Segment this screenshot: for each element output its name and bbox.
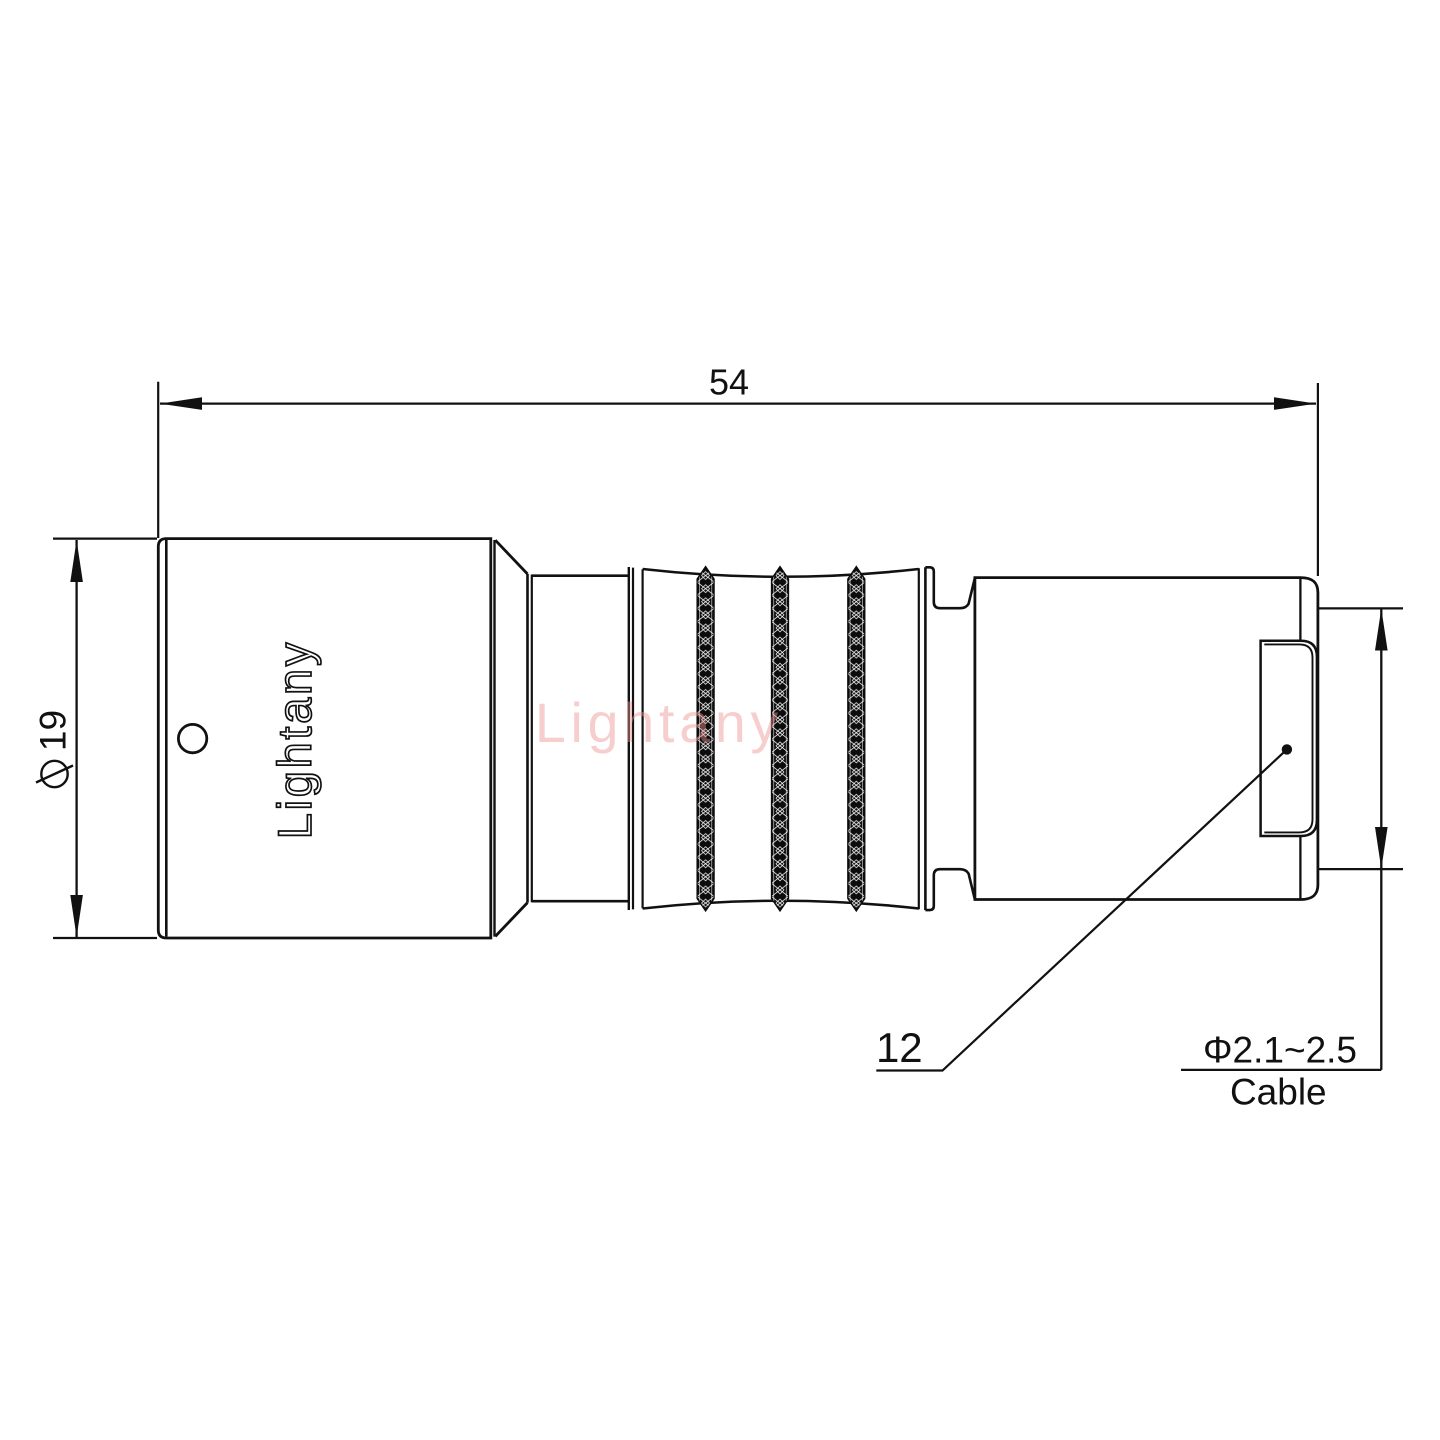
- svg-text:Lightany: Lightany: [268, 640, 321, 839]
- svg-text:Cable: Cable: [1230, 1072, 1327, 1113]
- svg-text:12: 12: [876, 1024, 923, 1071]
- svg-text:Lightany: Lightany: [535, 692, 783, 754]
- svg-text:Φ2.1~2.5: Φ2.1~2.5: [1203, 1029, 1357, 1070]
- svg-text:19: 19: [33, 710, 74, 751]
- svg-text:54: 54: [709, 362, 749, 403]
